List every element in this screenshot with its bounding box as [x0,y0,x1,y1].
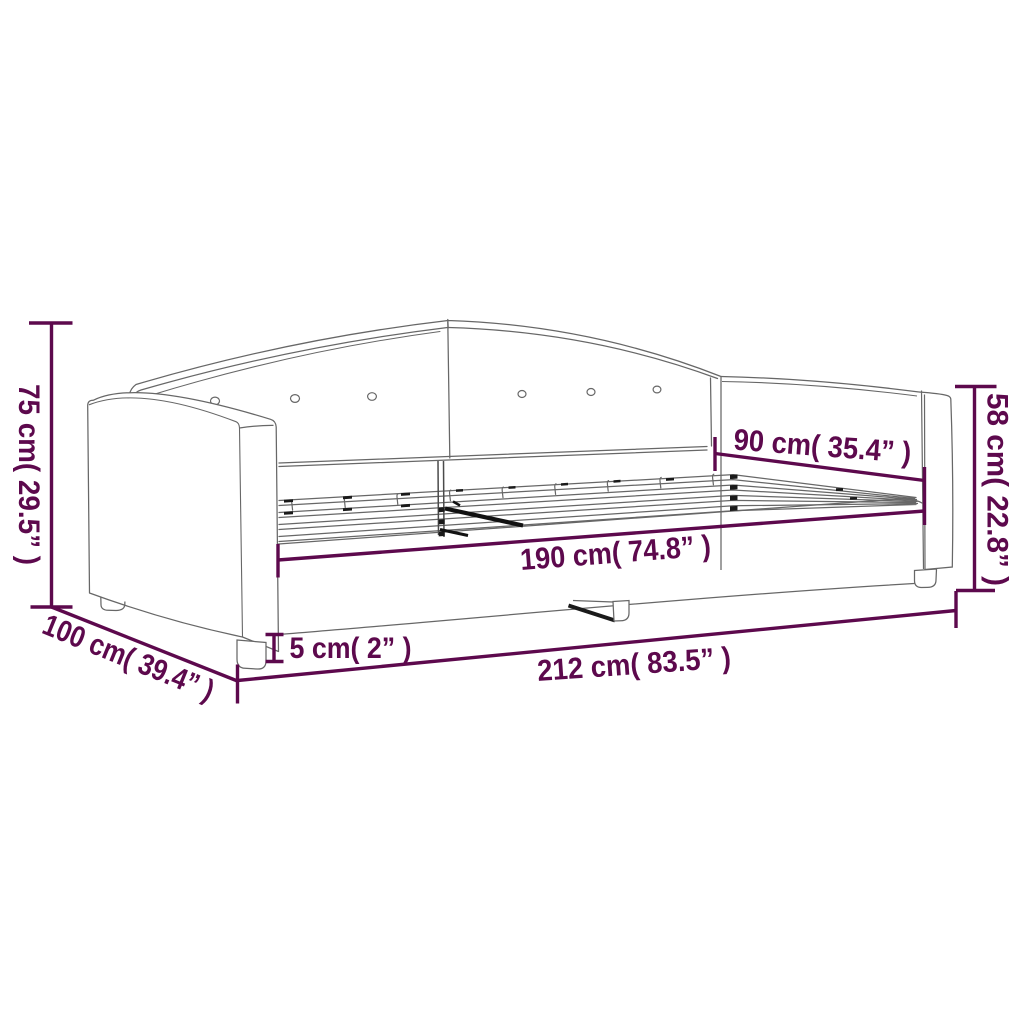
svg-text:75 cm( 29.5” ): 75 cm( 29.5” ) [12,384,45,565]
svg-text:58 cm( 22.8” ): 58 cm( 22.8” ) [981,393,1014,586]
svg-text:5 cm( 2” ): 5 cm( 2” ) [290,632,412,665]
